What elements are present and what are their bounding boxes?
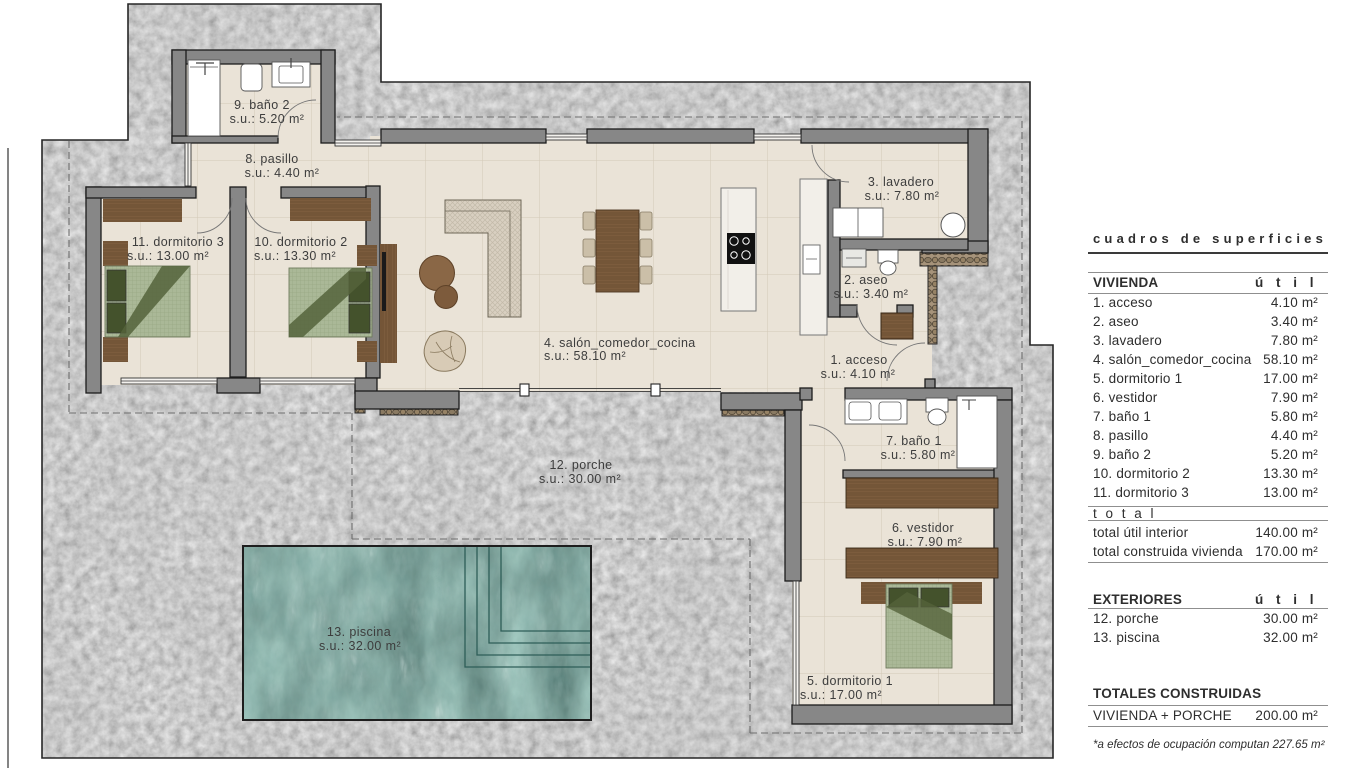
svg-text:4. salón_comedor_cocina: 4. salón_comedor_cocina [544,336,696,350]
svg-text:12. porche: 12. porche [549,458,612,472]
svg-text:9. baño 2: 9. baño 2 [234,98,290,112]
svg-text:s.u.: 5.80 m²: s.u.: 5.80 m² [881,448,956,462]
svg-text:7. baño 1: 7. baño 1 [886,434,942,448]
svg-text:s.u.: 58.10 m²: s.u.: 58.10 m² [544,349,626,363]
svg-text:8. pasillo: 8. pasillo [245,152,298,166]
svg-text:s.u.: 3.40 m²: s.u.: 3.40 m² [834,287,909,301]
svg-text:s.u.: 17.00 m²: s.u.: 17.00 m² [800,688,882,702]
svg-text:s.u.: 4.40 m²: s.u.: 4.40 m² [245,166,320,180]
svg-text:s.u.: 13.30 m²: s.u.: 13.30 m² [254,249,336,263]
svg-text:6. vestidor: 6. vestidor [892,521,954,535]
svg-text:s.u.: 13.00 m²: s.u.: 13.00 m² [127,249,209,263]
svg-text:11. dormitorio 3: 11. dormitorio 3 [132,235,224,249]
svg-text:3. lavadero: 3. lavadero [868,175,934,189]
svg-text:13. piscina: 13. piscina [327,625,391,639]
svg-text:s.u.: 30.00 m²: s.u.: 30.00 m² [539,472,621,486]
svg-text:s.u.: 7.80 m²: s.u.: 7.80 m² [865,189,940,203]
svg-text:s.u.: 4.10 m²: s.u.: 4.10 m² [821,367,896,381]
svg-text:2. aseo: 2. aseo [844,273,888,287]
svg-text:5. dormitorio 1: 5. dormitorio 1 [807,674,893,688]
svg-text:1. acceso: 1. acceso [830,353,887,367]
svg-text:10. dormitorio 2: 10. dormitorio 2 [254,235,347,249]
svg-text:s.u.: 5.20 m²: s.u.: 5.20 m² [230,112,305,126]
svg-text:s.u.: 7.90 m²: s.u.: 7.90 m² [888,535,963,549]
svg-text:s.u.: 32.00 m²: s.u.: 32.00 m² [319,639,401,653]
